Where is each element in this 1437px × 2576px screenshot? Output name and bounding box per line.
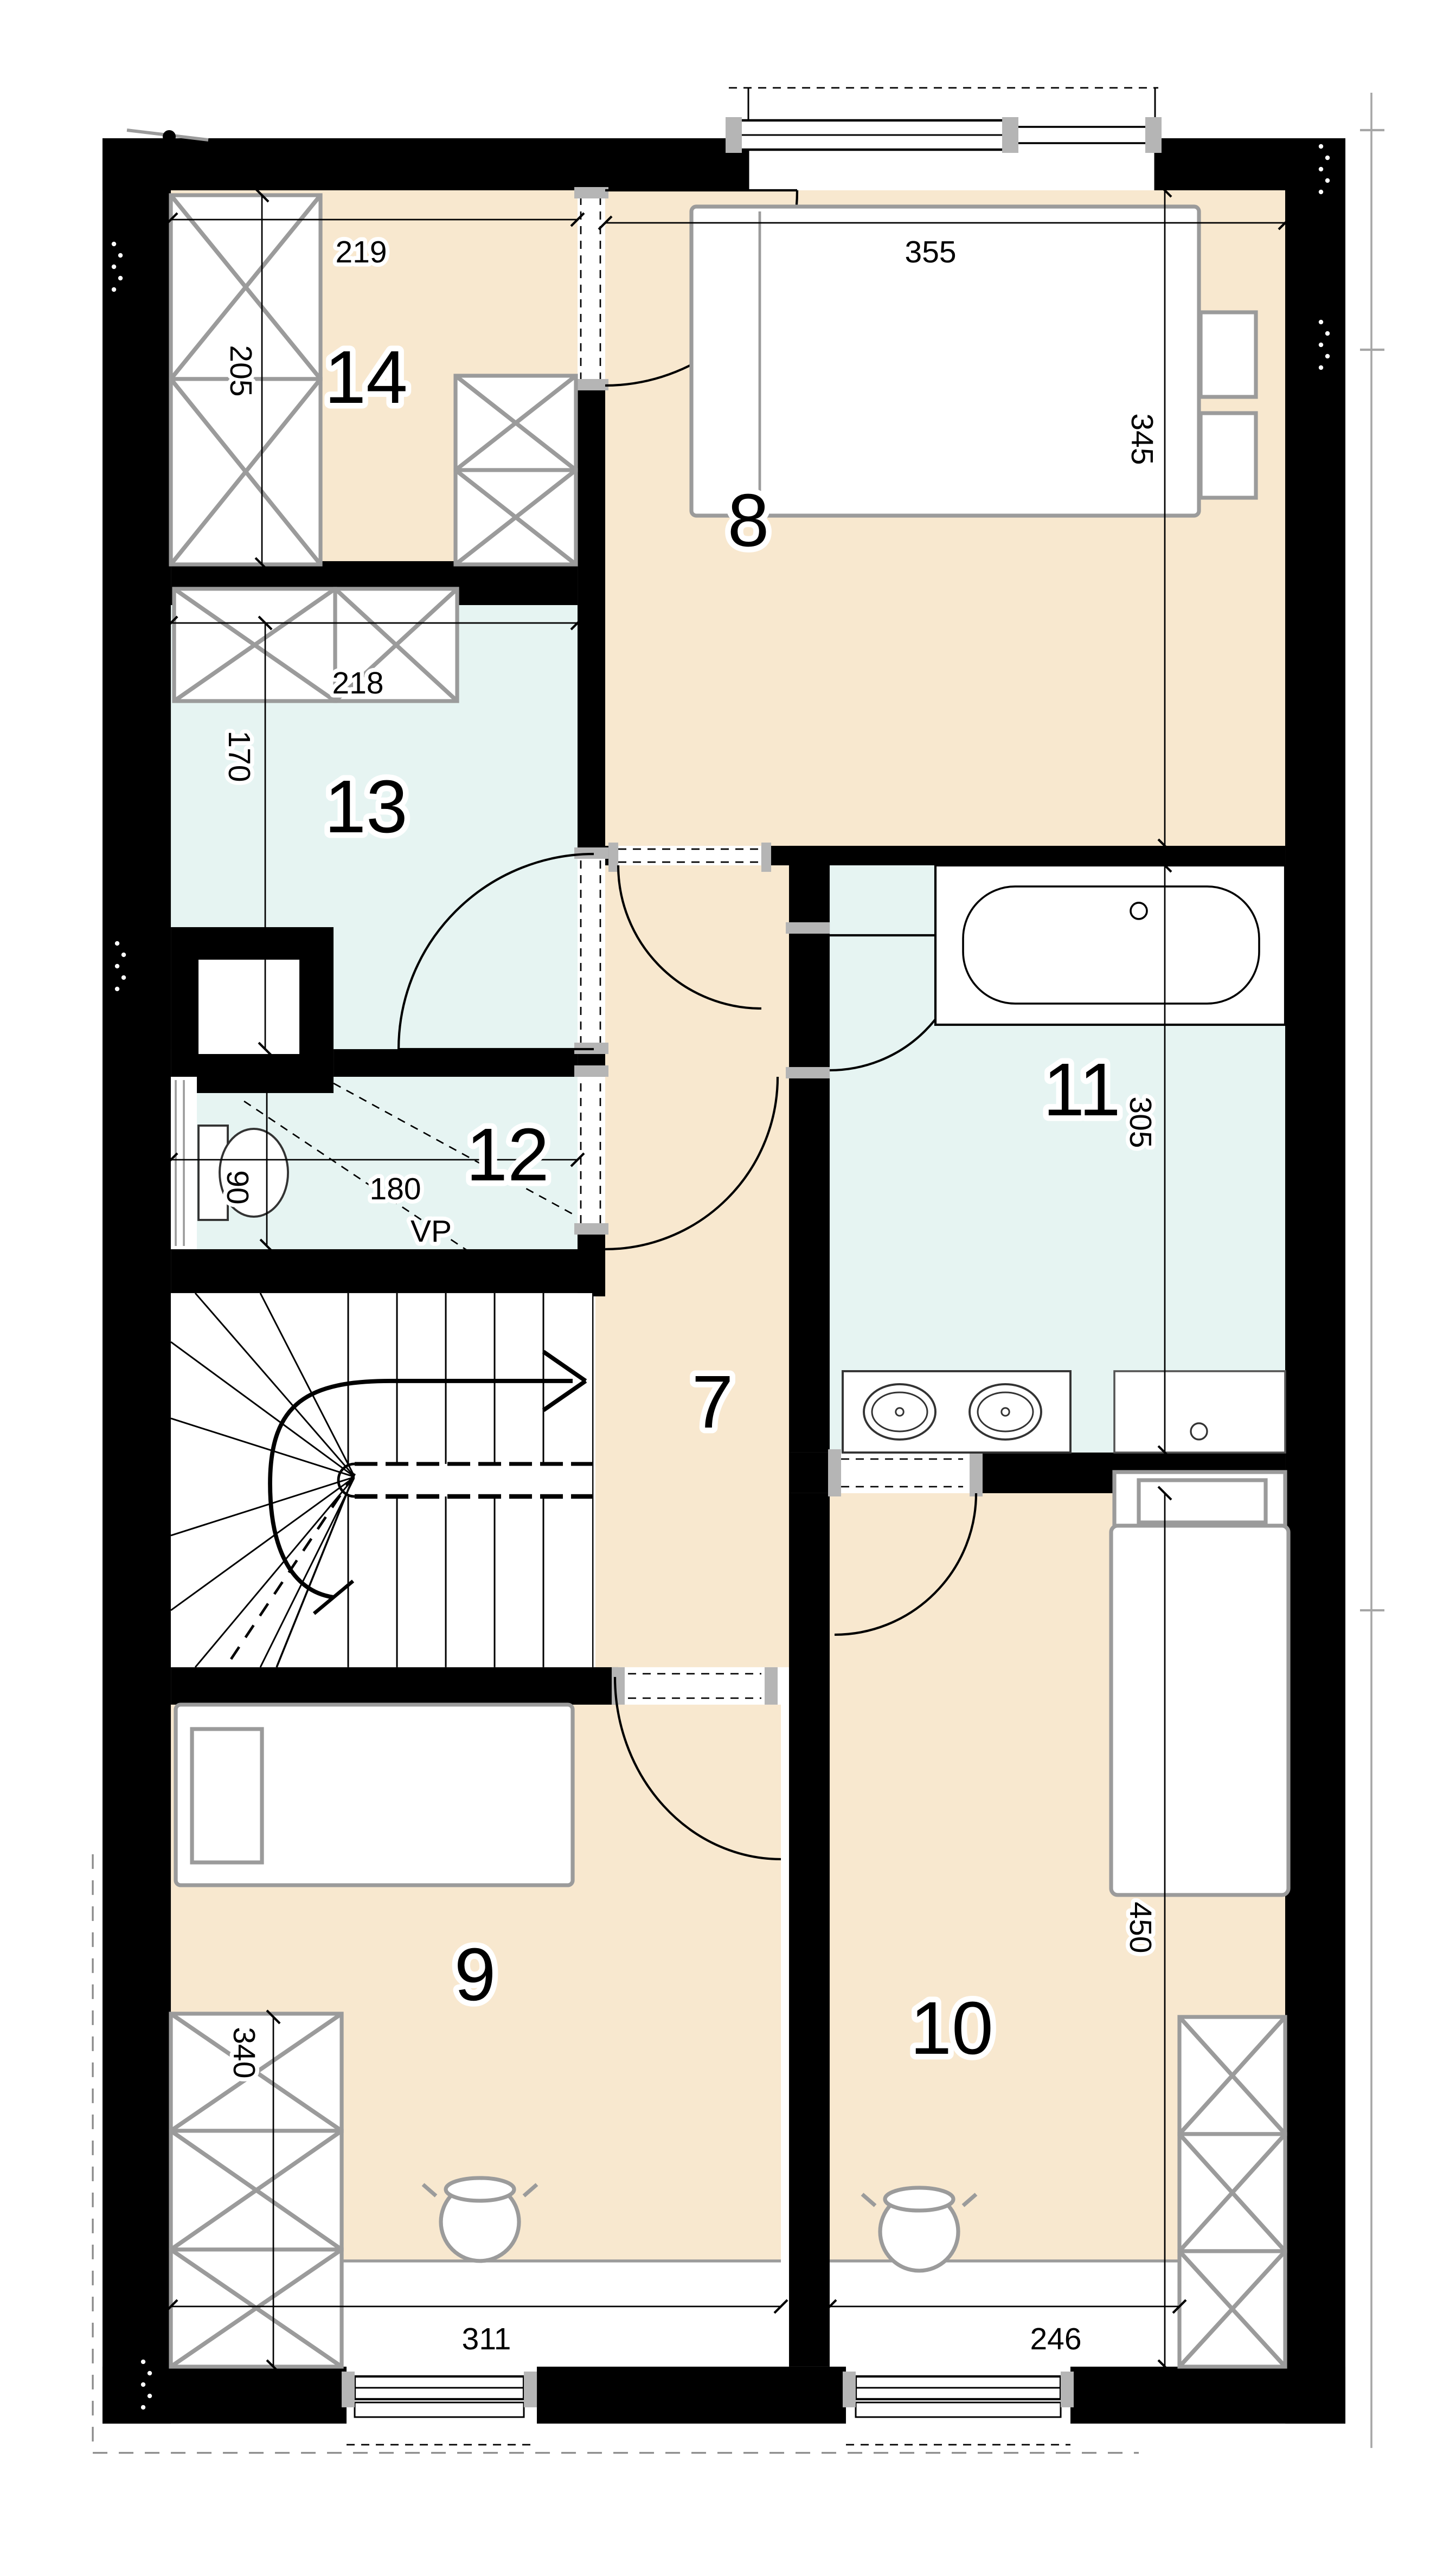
dim-311: 311 [462, 2322, 511, 2356]
room-number-14: 14 [324, 336, 407, 419]
dim-340: 340 [227, 2027, 261, 2078]
dim-305: 305 [1123, 1096, 1158, 1148]
dim-450: 450 [1123, 1902, 1158, 1953]
floor-plan-page: 14 8 13 12 11 7 9 10 219 355 218 180 311… [0, 0, 1437, 2576]
label-vp: VP [410, 1214, 452, 1249]
dim-219: 219 [336, 235, 387, 269]
bathtub [935, 865, 1285, 1025]
floor-plan-drawing: 14 8 13 12 11 7 9 10 219 355 218 180 311… [0, 0, 1437, 2576]
bed-room10 [1111, 1472, 1288, 1895]
wardrobe-room14-right [456, 376, 576, 564]
wall-bottom-2 [537, 2367, 846, 2424]
dim-355: 355 [905, 235, 957, 269]
dim-90: 90 [220, 1170, 255, 1204]
window-room10 [843, 2372, 1074, 2445]
wall-spine-a [578, 386, 605, 854]
wall-hall-bath [789, 846, 830, 1453]
wall-bottom-3 [1070, 2367, 1345, 2424]
dim-180: 180 [370, 1172, 421, 1206]
wall-left [102, 138, 171, 2424]
room-number-9: 9 [454, 1933, 496, 2016]
stair-divider [338, 1464, 592, 1496]
room-number-13: 13 [324, 765, 407, 849]
vanity-double-sink [843, 1371, 1070, 1453]
wardrobe-room13 [174, 589, 457, 701]
dim-170: 170 [222, 730, 256, 782]
wall-top-left [102, 138, 748, 190]
room-number-12: 12 [466, 1113, 549, 1197]
bed-room8 [691, 207, 1256, 516]
hall-7-floor [595, 865, 789, 1667]
bed-room9 [176, 1705, 573, 1885]
dim-218: 218 [332, 666, 384, 701]
wall-8-hall-b [761, 846, 1285, 865]
wardrobe-room10 [1179, 2017, 1285, 2367]
window-room9 [342, 2372, 537, 2445]
wall-bath-10-a [789, 1453, 835, 1493]
wall-12-stairs [171, 1249, 605, 1293]
room-number-10: 10 [910, 1987, 993, 2070]
room-number-7: 7 [692, 1360, 734, 1444]
wall-right [1285, 138, 1345, 2424]
wall-bottom-1 [102, 2367, 347, 2424]
room-number-11: 11 [1043, 1048, 1120, 1132]
shaft-void [198, 960, 299, 1054]
dim-345: 345 [1125, 413, 1159, 465]
wall-below-stairs [171, 1667, 618, 1705]
staircase [171, 1293, 592, 1667]
shower-unit [1114, 1371, 1285, 1453]
dim-246: 246 [1030, 2322, 1081, 2356]
room-number-8: 8 [728, 479, 769, 562]
dim-205: 205 [223, 345, 258, 396]
wall-9-10 [789, 1493, 830, 2367]
wall-13-12 [333, 1049, 578, 1077]
window-room8 [726, 88, 1162, 190]
